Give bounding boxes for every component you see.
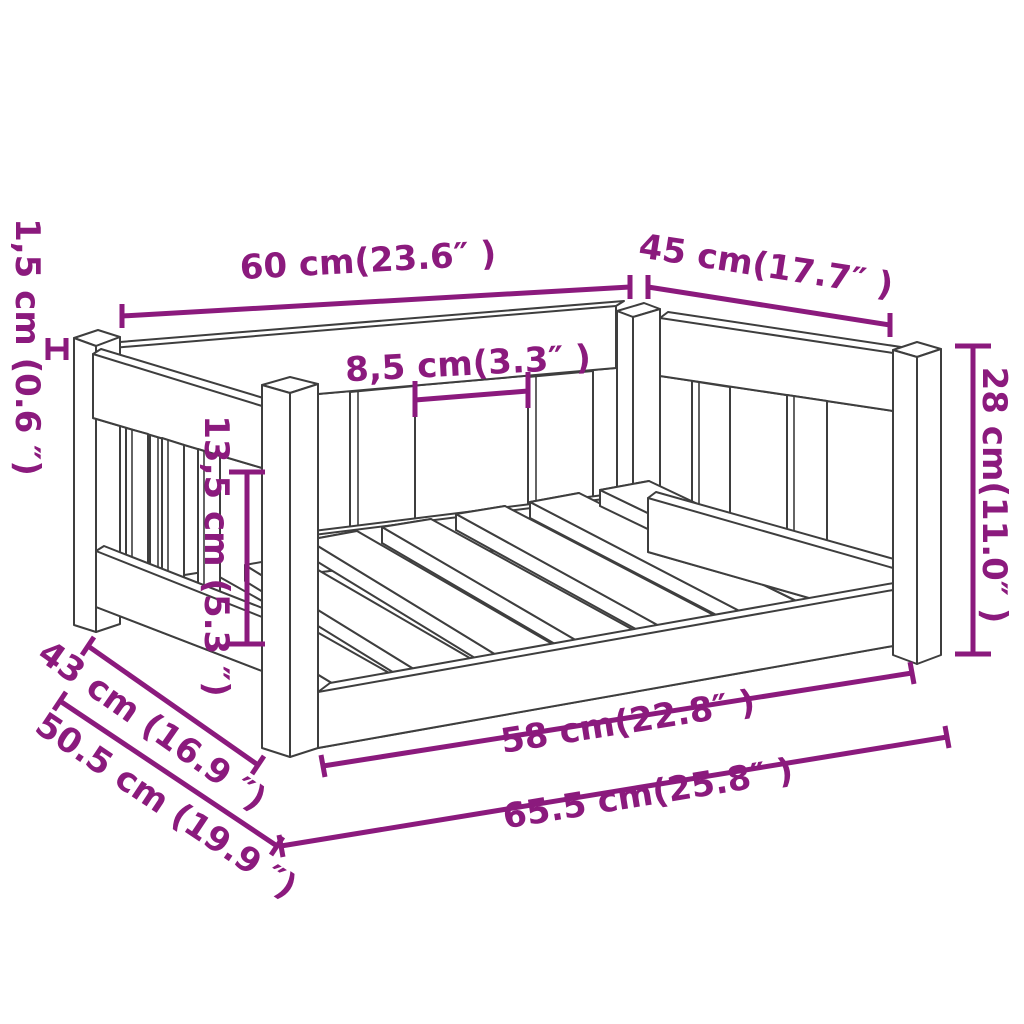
post-front-right (893, 342, 941, 664)
dimension-13-5cm-label: 13,5 cm (5.3 ″) (199, 415, 233, 696)
dimension-1-5cm-label: 1,5 cm (0.6 ″) (10, 218, 44, 476)
dimension-28cm-label: 28 cm(11.0″ ) (977, 367, 1011, 624)
dog-bed-line-drawing (0, 0, 1024, 1024)
dog-bed-dimension-diagram: 60 cm(23.6″ ) 45 cm(17.7″ ) 8,5 cm(3.3″ … (0, 0, 1024, 1024)
post-front-left (262, 377, 318, 757)
dimension-1-5cm-line (48, 338, 66, 360)
